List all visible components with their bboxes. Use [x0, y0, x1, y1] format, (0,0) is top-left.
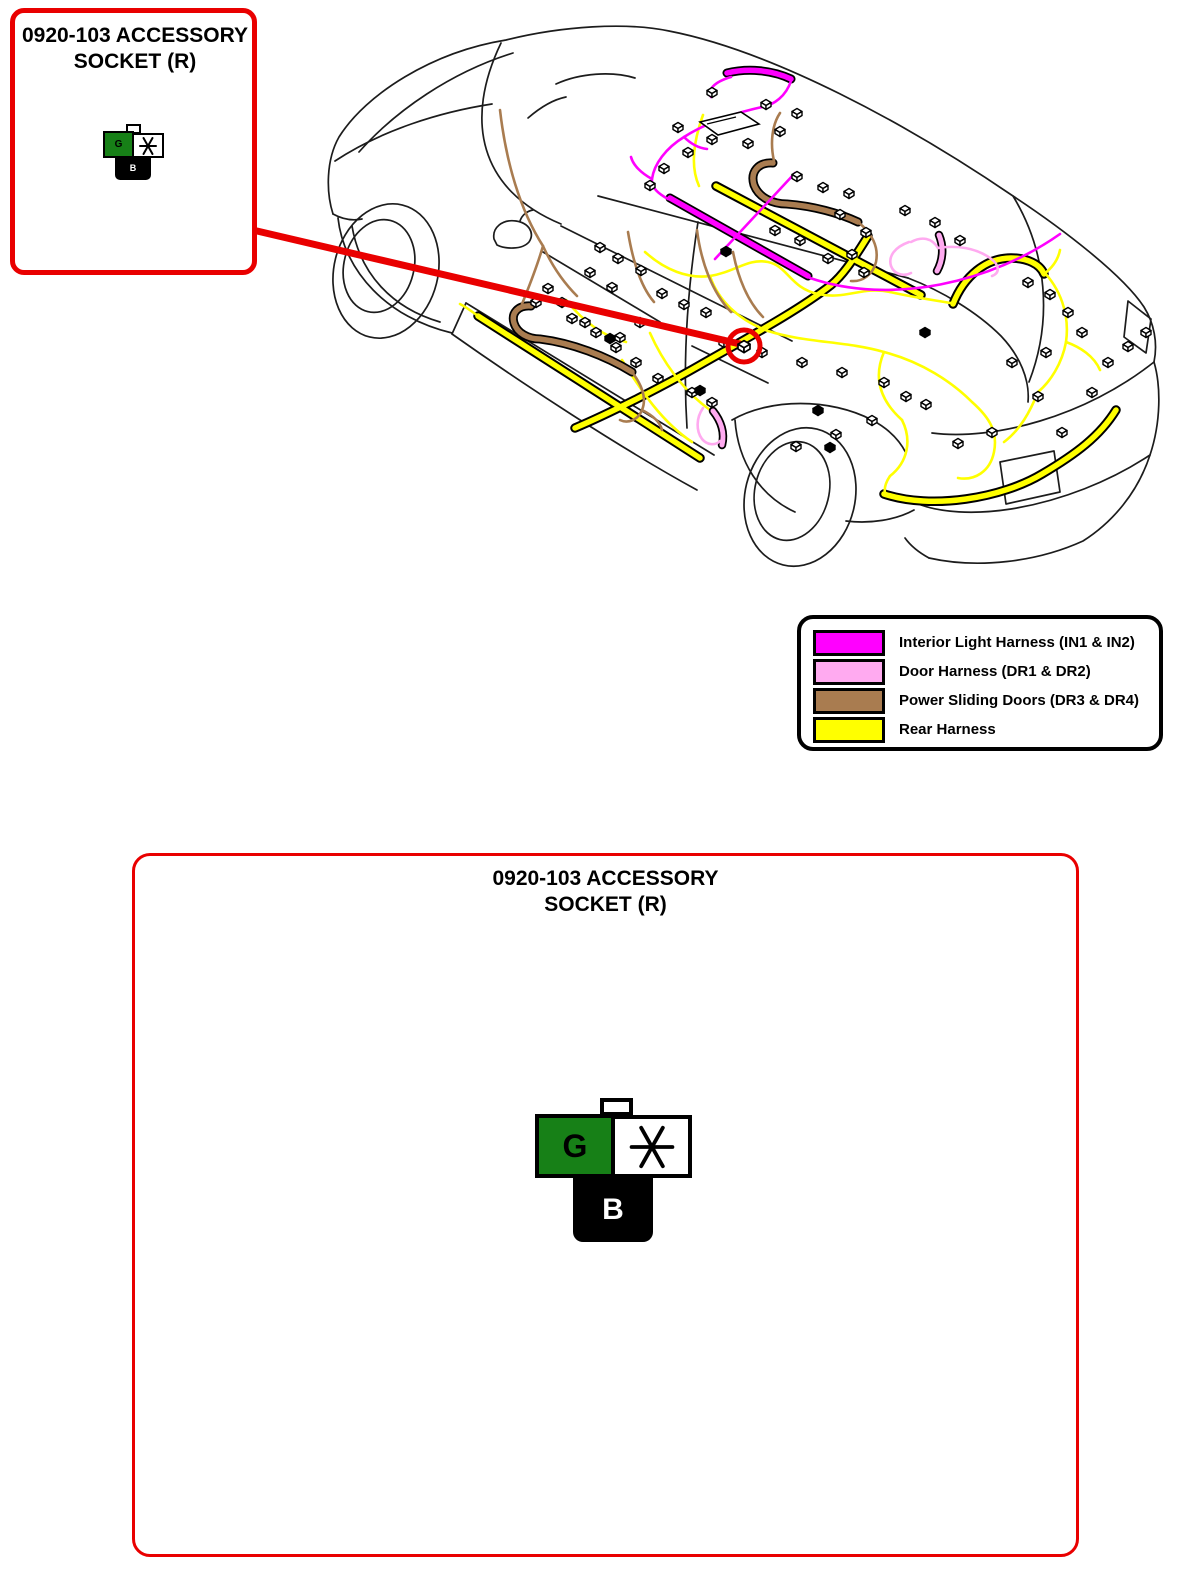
asterisk-icon: [628, 1123, 676, 1171]
legend-row-door-harness: Door Harness (DR1 & DR2): [813, 657, 1151, 686]
rear-harness-swatch: [813, 717, 885, 743]
legend-label: Power Sliding Doors (DR3 & DR4): [899, 692, 1139, 709]
accessory-socket-connector-cube: [738, 341, 750, 353]
legend-row-power-sliding-doors: Power Sliding Doors (DR3 & DR4): [813, 686, 1151, 715]
callout-accessory-socket-large: 0920-103 ACCESSORY SOCKET (R) G B: [132, 853, 1079, 1557]
connector-cell-green: G: [103, 131, 134, 158]
interior-light-harness-swatch: [813, 630, 885, 656]
callout-small-title: 0920-103 ACCESSORY SOCKET (R): [15, 23, 255, 74]
connector-cell-green: G: [535, 1114, 615, 1178]
car-body-outline: [319, 26, 1159, 578]
page: 0920-103 ACCESSORY SOCKET (R) G B Interi…: [0, 0, 1178, 1572]
legend-label: Door Harness (DR1 & DR2): [899, 663, 1091, 680]
legend-label: Interior Light Harness (IN1 & IN2): [899, 634, 1135, 651]
connector-diagram-small: G B: [103, 123, 183, 193]
callout-large-title: 0920-103 ACCESSORY SOCKET (R): [486, 866, 726, 917]
connector-cell-black: B: [115, 156, 151, 180]
vehicle-harness-diagram: [250, 0, 1178, 620]
legend-label: Rear Harness: [899, 721, 996, 738]
connector-green-label: G: [563, 1128, 588, 1165]
callout-accessory-socket-small: 0920-103 ACCESSORY SOCKET (R) G B: [10, 8, 257, 275]
connector-black-label: B: [602, 1193, 624, 1227]
harness-legend: Interior Light Harness (IN1 & IN2)Door H…: [797, 615, 1163, 751]
connector-cell-accessory: [611, 1115, 692, 1178]
connector-diagram-large: G B: [535, 1098, 705, 1248]
door-harness-swatch: [813, 659, 885, 685]
power-sliding-doors-swatch: [813, 688, 885, 714]
connector-cell-black: B: [573, 1178, 653, 1242]
asterisk-icon: [138, 136, 158, 156]
legend-row-interior-light-harness: Interior Light Harness (IN1 & IN2): [813, 628, 1151, 657]
connector-cell-accessory: [132, 133, 164, 158]
connector-green-label: G: [115, 139, 123, 150]
legend-row-rear-harness: Rear Harness: [813, 715, 1151, 744]
connector-black-label: B: [130, 163, 137, 173]
harness-legend-rows: Interior Light Harness (IN1 & IN2)Door H…: [813, 628, 1151, 744]
